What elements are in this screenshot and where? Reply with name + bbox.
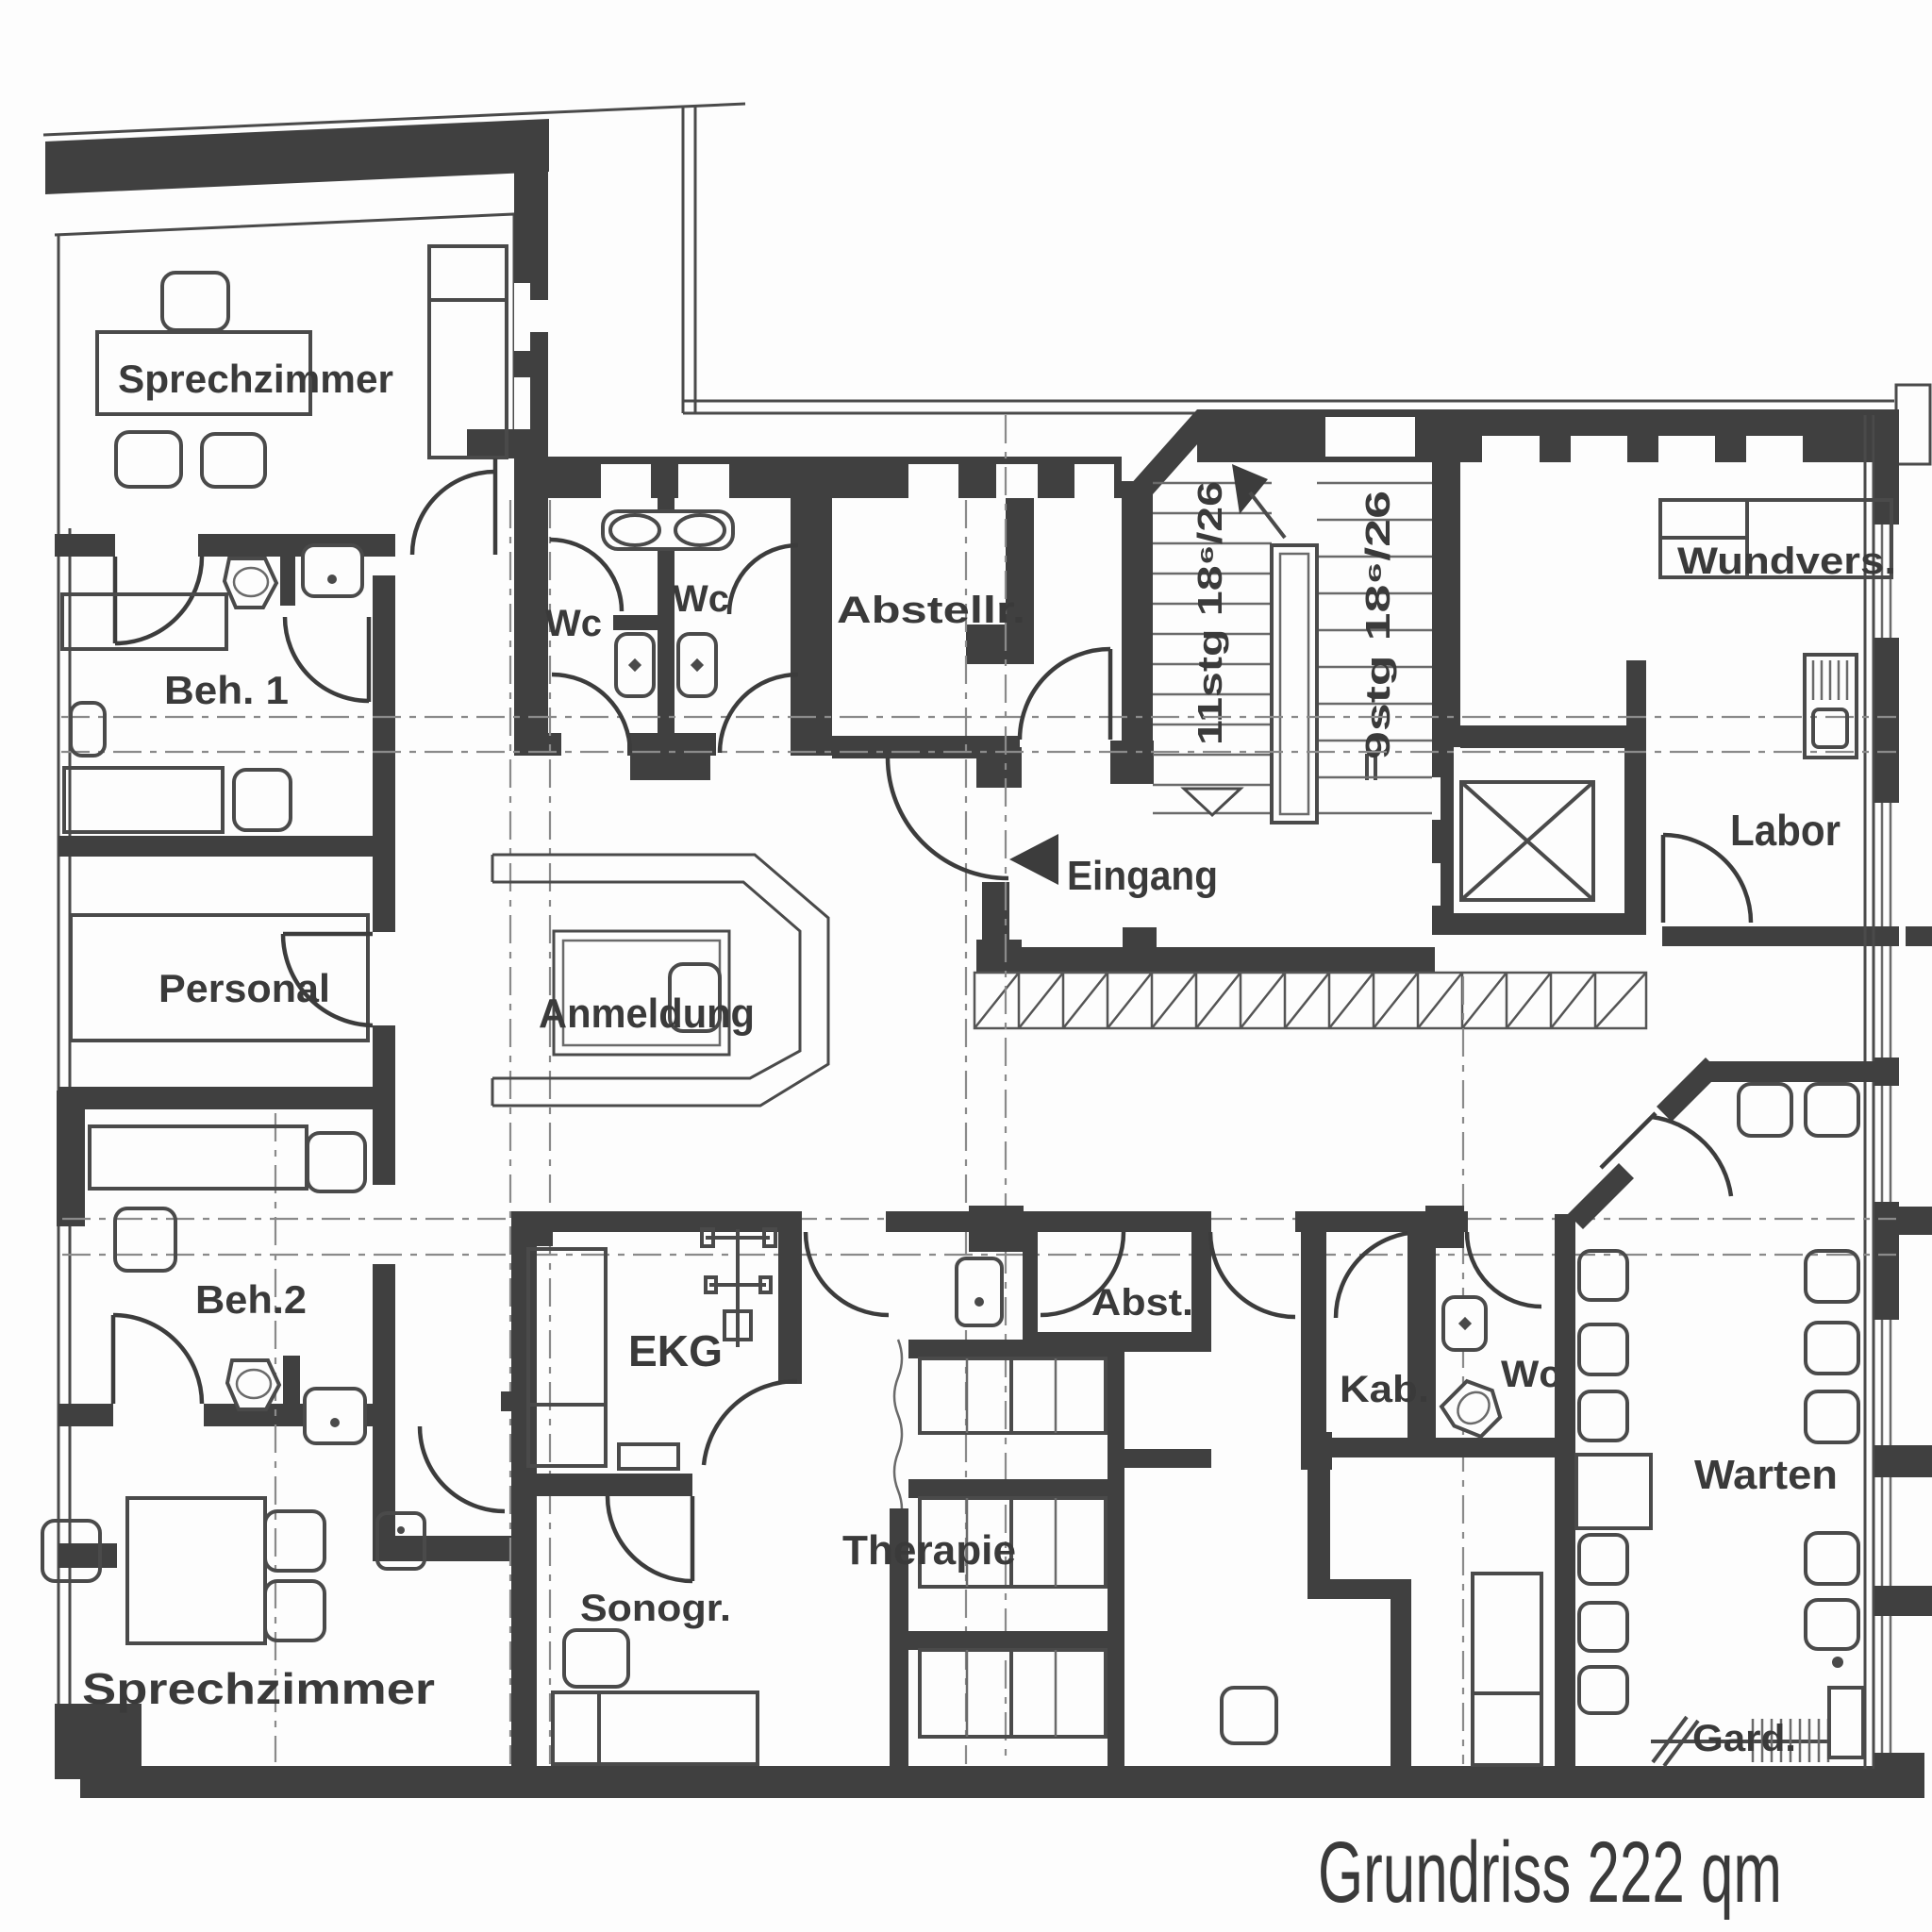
svg-text:Sprechzimmer: Sprechzimmer	[118, 357, 393, 401]
svg-text:Abst.: Abst.	[1091, 1282, 1193, 1324]
svg-text:Sprechzimmer: Sprechzimmer	[82, 1664, 435, 1713]
svg-text:Abstellr.: Abstellr.	[837, 590, 1025, 631]
svg-text:Anmeldung: Anmeldung	[539, 991, 755, 1037]
svg-text:Wc: Wc	[673, 578, 729, 620]
svg-text:Beh. 1: Beh. 1	[164, 668, 289, 712]
svg-text:Gard.: Gard.	[1692, 1718, 1796, 1759]
svg-text:Therapie: Therapie	[842, 1527, 1016, 1574]
svg-text:Personal: Personal	[158, 966, 330, 1010]
svg-text:Wc: Wc	[545, 603, 602, 644]
svg-text:Wc: Wc	[1501, 1354, 1561, 1395]
svg-text:9stg 18⁶/26: 9stg 18⁶/26	[1358, 491, 1397, 759]
svg-text:Labor: Labor	[1730, 806, 1840, 855]
svg-text:Kab.: Kab.	[1340, 1369, 1429, 1410]
svg-text:Beh.2: Beh.2	[195, 1277, 307, 1322]
svg-text:Wundvers.: Wundvers.	[1677, 541, 1896, 582]
svg-text:Warten: Warten	[1694, 1452, 1838, 1498]
svg-text:EKG: EKG	[628, 1326, 723, 1375]
svg-text:Grundriss 222 qm: Grundriss 222 qm	[1318, 1824, 1782, 1921]
svg-text:Sonogr.: Sonogr.	[580, 1588, 731, 1629]
svg-text:Eingang: Eingang	[1067, 853, 1218, 899]
svg-text:11stg 18⁶/26: 11stg 18⁶/26	[1191, 481, 1229, 745]
